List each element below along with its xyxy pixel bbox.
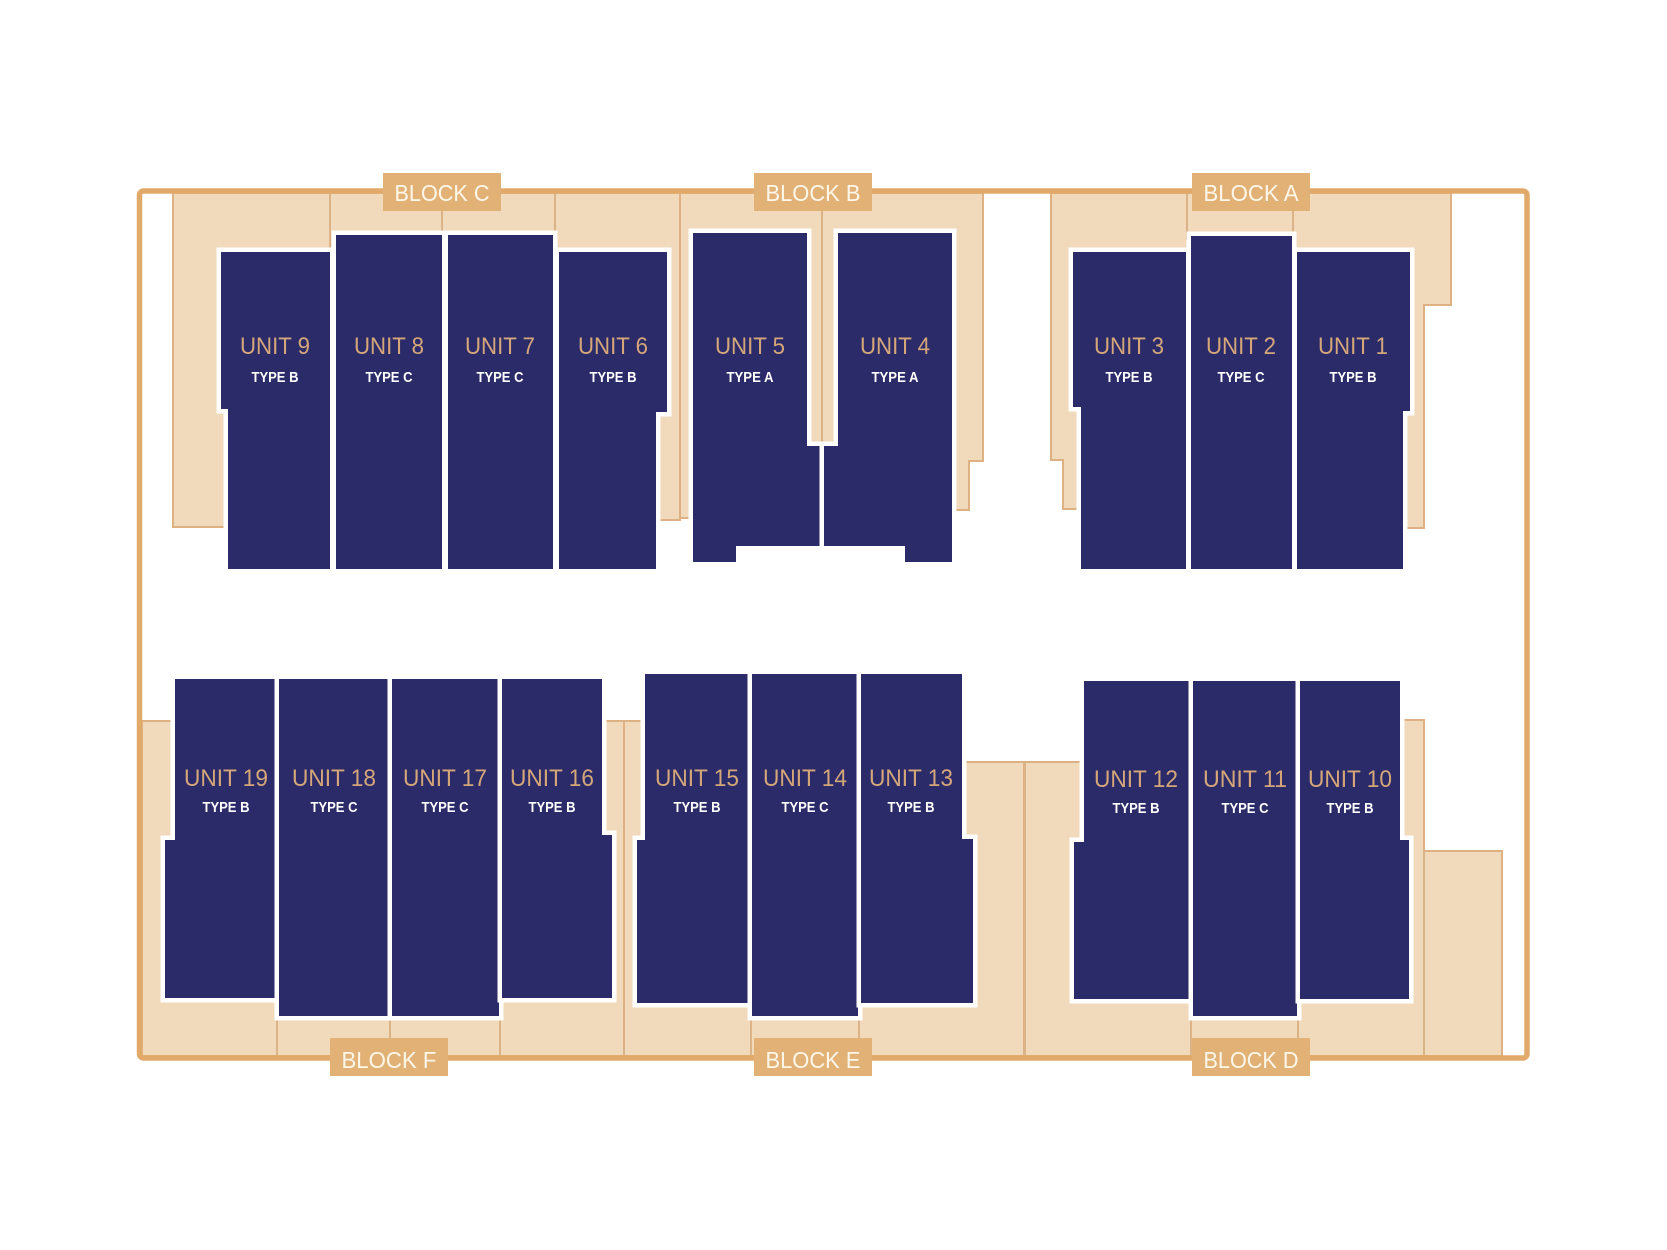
svg-text:BLOCK A: BLOCK A <box>1204 180 1299 206</box>
svg-text:BLOCK D: BLOCK D <box>1204 1047 1299 1073</box>
svg-text:TYPE B: TYPE B <box>529 800 576 816</box>
svg-text:UNIT 10: UNIT 10 <box>1308 766 1392 793</box>
svg-text:BLOCK F: BLOCK F <box>342 1047 437 1073</box>
svg-text:TYPE B: TYPE B <box>1330 370 1377 386</box>
svg-text:TYPE B: TYPE B <box>203 800 250 816</box>
svg-text:UNIT 9: UNIT 9 <box>240 333 310 360</box>
svg-text:TYPE B: TYPE B <box>674 800 721 816</box>
svg-text:TYPE B: TYPE B <box>888 800 935 816</box>
svg-text:UNIT 14: UNIT 14 <box>763 765 847 792</box>
svg-text:TYPE B: TYPE B <box>1113 801 1160 817</box>
svg-text:UNIT 15: UNIT 15 <box>655 765 739 792</box>
svg-text:UNIT 13: UNIT 13 <box>869 765 953 792</box>
svg-text:UNIT 18: UNIT 18 <box>292 765 376 792</box>
svg-text:UNIT 4: UNIT 4 <box>860 333 930 360</box>
svg-text:TYPE A: TYPE A <box>872 370 919 386</box>
svg-text:UNIT 5: UNIT 5 <box>715 333 785 360</box>
svg-text:BLOCK B: BLOCK B <box>766 180 861 206</box>
svg-text:TYPE C: TYPE C <box>366 370 413 386</box>
svg-text:UNIT 11: UNIT 11 <box>1203 766 1287 793</box>
svg-text:UNIT 17: UNIT 17 <box>403 765 487 792</box>
svg-text:UNIT 12: UNIT 12 <box>1094 766 1178 793</box>
svg-text:TYPE C: TYPE C <box>782 800 829 816</box>
svg-text:UNIT 3: UNIT 3 <box>1094 333 1164 360</box>
svg-text:TYPE C: TYPE C <box>1218 370 1265 386</box>
svg-text:UNIT 8: UNIT 8 <box>354 333 424 360</box>
svg-text:BLOCK E: BLOCK E <box>766 1047 861 1073</box>
svg-text:TYPE C: TYPE C <box>422 800 469 816</box>
svg-text:TYPE C: TYPE C <box>1222 801 1269 817</box>
svg-text:UNIT 16: UNIT 16 <box>510 765 594 792</box>
svg-text:TYPE B: TYPE B <box>1106 370 1153 386</box>
svg-text:TYPE B: TYPE B <box>252 370 299 386</box>
svg-text:UNIT 19: UNIT 19 <box>184 765 268 792</box>
svg-text:UNIT 6: UNIT 6 <box>578 333 648 360</box>
svg-text:TYPE B: TYPE B <box>1327 801 1374 817</box>
svg-text:TYPE A: TYPE A <box>727 370 774 386</box>
svg-text:UNIT 7: UNIT 7 <box>465 333 535 360</box>
svg-text:BLOCK C: BLOCK C <box>395 180 490 206</box>
svg-text:TYPE C: TYPE C <box>311 800 358 816</box>
svg-text:UNIT 1: UNIT 1 <box>1318 333 1388 360</box>
svg-text:TYPE B: TYPE B <box>590 370 637 386</box>
svg-text:UNIT 2: UNIT 2 <box>1206 333 1276 360</box>
svg-text:TYPE C: TYPE C <box>477 370 524 386</box>
